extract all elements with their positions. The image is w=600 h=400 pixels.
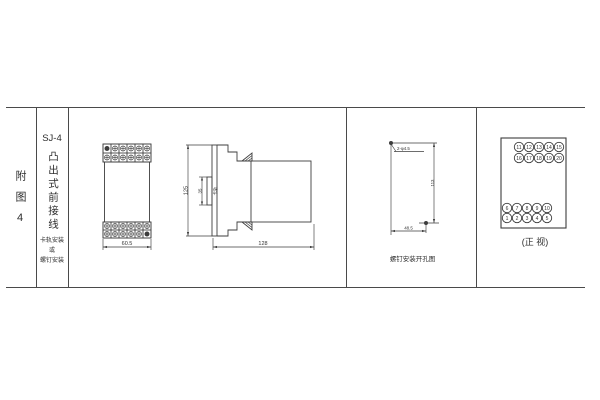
- side-rail-dim-text: 35: [198, 188, 203, 193]
- terminal-number-text: 17: [526, 156, 532, 162]
- mount-note-line1: 卡轨安装: [36, 238, 68, 245]
- hole-drawing-caption: 螺钉安装开孔图: [375, 253, 450, 263]
- terminal-screw-icon: [105, 146, 110, 151]
- side-view-drawing: 125 35 卡轨 128: [175, 138, 330, 255]
- front-terminal-screws: [103, 144, 151, 238]
- side-rail-label: 卡轨: [212, 186, 219, 195]
- terminal-number-text: 19: [546, 156, 552, 162]
- terminal-number-text: 14: [546, 145, 552, 151]
- terminal-numbers: 1112131415161718192067891012345: [502, 142, 563, 222]
- table-divider-4: [476, 107, 477, 288]
- front-body: [105, 162, 150, 222]
- table-divider-2: [68, 107, 69, 288]
- table-divider-3: [346, 107, 347, 288]
- model-label: SJ-4: [36, 133, 68, 144]
- terminal-number-text: 7: [516, 206, 519, 212]
- terminal-number-text: 9: [536, 206, 539, 212]
- terminal-number-text: 4: [536, 216, 539, 222]
- hole-width-dim-text: 48.5: [404, 226, 413, 231]
- terminal-number-text: 5: [546, 216, 549, 222]
- hole-spec-text: 2-φ4.5: [397, 146, 410, 151]
- front-view-drawing: 60.5: [95, 138, 165, 255]
- side-body: [251, 161, 311, 222]
- terminal-number-text: 12: [526, 145, 532, 151]
- figure-label: 附图4: [12, 170, 28, 234]
- terminal-number-text: 8: [526, 206, 529, 212]
- side-depth-dim-text: 128: [258, 241, 267, 247]
- hole-drilling-drawing: 2-φ4.5 113 48.5: [380, 138, 445, 250]
- side-height-dim-text: 125: [184, 186, 190, 195]
- drawing-sheet: { "sidebar": { "figure_label": "附图4", "m…: [0, 0, 600, 400]
- terminal-number-text: 13: [536, 145, 542, 151]
- terminal-view-caption: (正 视): [495, 235, 575, 248]
- table-border-top: [6, 107, 585, 108]
- mount-note-line2: 或: [36, 248, 68, 255]
- hole-height-dim-text: 113: [430, 179, 435, 187]
- wiring-type-label: 凸出式前接线: [46, 151, 61, 232]
- terminal-number-text: 11: [516, 145, 521, 151]
- terminal-number-text: 10: [544, 206, 550, 212]
- terminal-number-text: 6: [506, 206, 509, 212]
- table-border-bottom: [6, 287, 585, 288]
- terminal-number-text: 3: [526, 216, 529, 222]
- mount-note-line3: 螺钉安装: [36, 258, 68, 265]
- side-din-rail: [207, 177, 212, 205]
- terminal-screw-icon: [145, 232, 150, 237]
- front-width-dim-text: 60.5: [122, 241, 133, 247]
- terminal-number-text: 15: [556, 145, 562, 151]
- terminal-face-drawing: 1112131415161718192067891012345: [495, 132, 575, 236]
- terminal-number-text: 18: [536, 156, 542, 162]
- terminal-number-text: 1: [506, 216, 509, 222]
- terminal-number-text: 20: [556, 156, 562, 162]
- terminal-number-text: 16: [516, 156, 522, 162]
- terminal-number-text: 2: [516, 216, 519, 222]
